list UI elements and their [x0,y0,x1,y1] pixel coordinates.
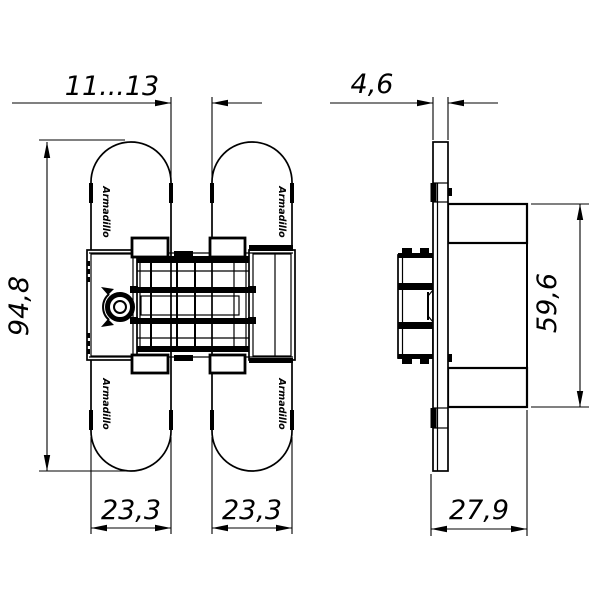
cup-bottom-flange [448,368,527,407]
dim-label-cup-depth: 27,9 [449,495,509,526]
brand-text: Armadillo [100,185,111,238]
dim-plate-thickness: 4,6 [330,69,498,140]
cup-top-flange [448,204,527,243]
brand-text: Armadillo [276,185,287,238]
dim-label-overall-height: 94,8 [4,276,35,336]
arm-block [398,248,433,364]
dim-label-plate-thickness: 4,6 [351,69,394,100]
dim-label-left-plate-width: 23,3 [101,495,161,526]
cup-body [448,204,527,407]
dim-cup-height: 59,6 [531,204,589,407]
hinge-mechanism [87,238,295,373]
technical-drawing-canvas: Armadillo Armadillo Armadillo Armadillo [0,0,600,600]
hinge-drawing: Armadillo Armadillo Armadillo Armadillo [0,0,600,600]
brand-text: Armadillo [100,377,111,430]
dim-label-gap-range: 11...13 [65,71,159,102]
front-view: Armadillo Armadillo Armadillo Armadillo [87,142,295,471]
brand-text: Armadillo [276,377,287,430]
side-view [398,142,527,471]
right-cup [249,250,295,360]
dim-label-right-plate-width: 23,3 [222,495,282,526]
dim-label-cup-height: 59,6 [532,273,563,333]
side-plate [431,142,453,471]
left-cup [87,250,137,360]
